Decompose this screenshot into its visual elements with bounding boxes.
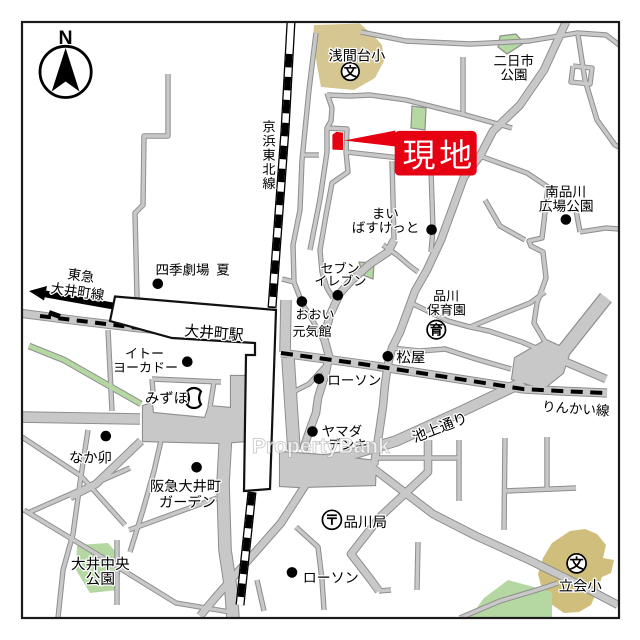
svg-text:N: N — [59, 27, 73, 49]
svg-text:PropertyBank: PropertyBank — [252, 435, 390, 458]
